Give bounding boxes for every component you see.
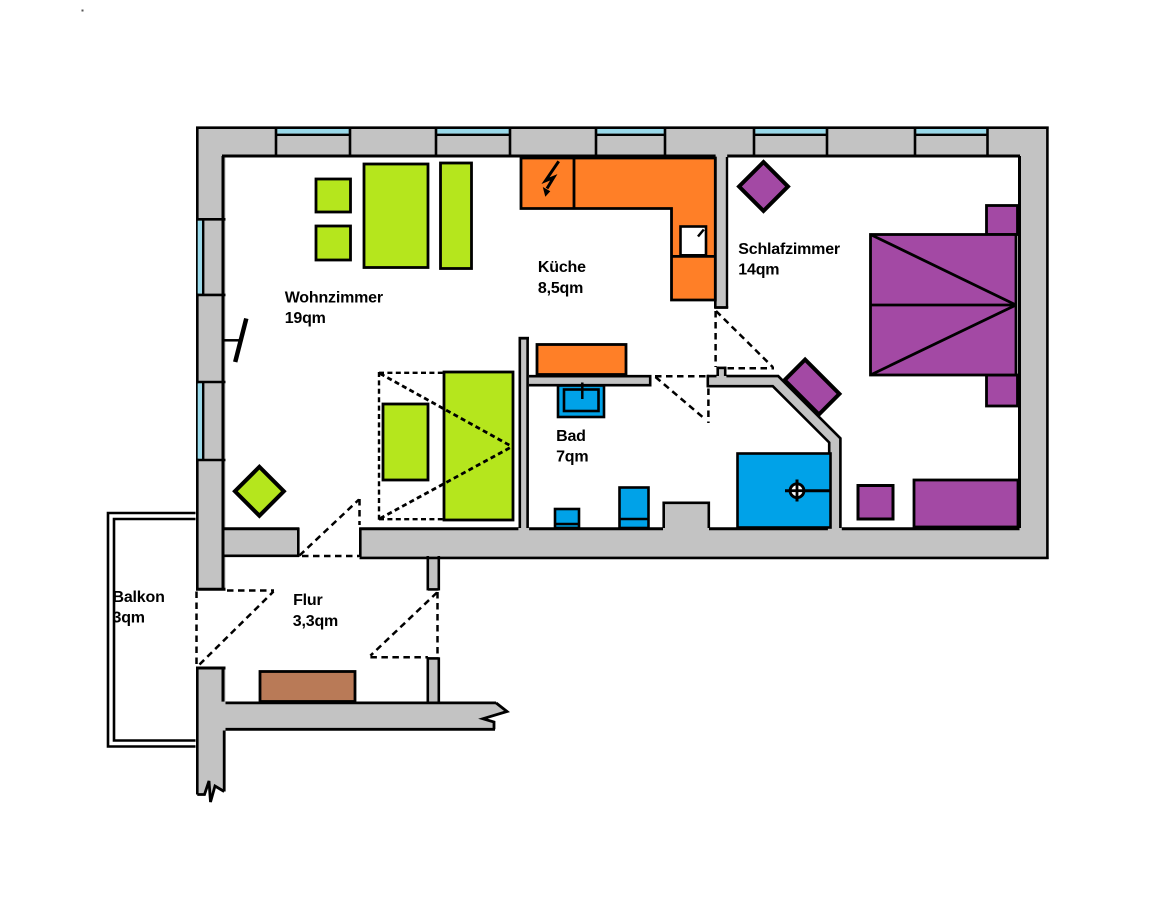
svg-text:3qm: 3qm bbox=[113, 609, 145, 626]
svg-text:Flur: Flur bbox=[293, 592, 322, 609]
svg-text:3,3qm: 3,3qm bbox=[293, 613, 338, 630]
svg-text:Küche: Küche bbox=[538, 259, 586, 276]
svg-text:Wohnzimmer: Wohnzimmer bbox=[285, 290, 383, 307]
svg-text:Schlafzimmer: Schlafzimmer bbox=[738, 241, 840, 258]
svg-text:Bad: Bad bbox=[556, 428, 586, 445]
svg-text:8,5qm: 8,5qm bbox=[538, 280, 583, 297]
svg-text:7qm: 7qm bbox=[556, 448, 588, 465]
svg-text:14qm: 14qm bbox=[738, 261, 779, 278]
svg-text:Balkon: Balkon bbox=[113, 589, 165, 606]
svg-text:19qm: 19qm bbox=[285, 310, 326, 327]
